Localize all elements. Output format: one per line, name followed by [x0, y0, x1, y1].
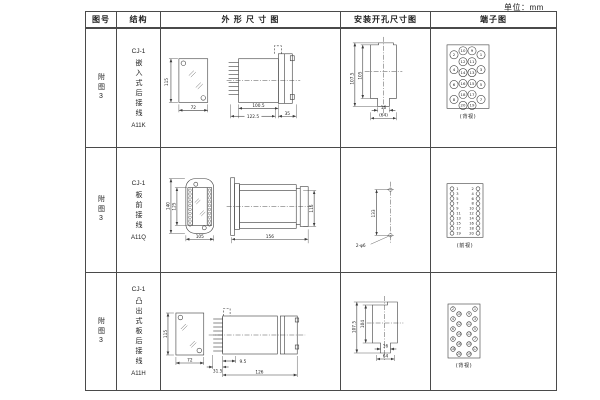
terminal-pin — [189, 204, 192, 207]
terminal-pin — [476, 187, 480, 191]
terminal-pin — [189, 224, 192, 227]
terminal-number: 18 — [461, 92, 466, 97]
terminal-pin — [208, 204, 211, 207]
terminal-number: 1 — [474, 307, 476, 311]
terminal-pin — [476, 197, 480, 201]
terminal-pin — [476, 202, 480, 206]
model-label: CJ-1 — [132, 180, 146, 187]
fig-no-label: 附图3 — [98, 195, 105, 225]
outline-drawing-a11q: 140 125 105 156 115 — [161, 148, 340, 272]
header-mounting: 安装开孔尺寸图 — [341, 12, 431, 29]
fig-no-label: 附图3 — [98, 317, 105, 347]
outline-cell-3: 115 72 31.5 9.5 126 — [161, 273, 341, 390]
terminal-pin — [450, 197, 454, 201]
fig-no-cell-2: 附图3 — [86, 148, 117, 273]
terminal-pin — [208, 197, 211, 200]
header-terminal: 端子图 — [431, 12, 556, 29]
terminal-view-label: (前视) — [457, 241, 473, 249]
terminal-number: 20 — [461, 103, 466, 108]
header-structure: 结构 — [117, 12, 161, 29]
terminal-number: 11 — [456, 212, 461, 216]
dim-64: (64) — [379, 113, 388, 119]
dim-9-5: 9.5 — [240, 359, 247, 365]
terminal-number: 18 — [451, 347, 455, 351]
terminal-pin — [189, 220, 192, 223]
terminal-number: 16 — [469, 222, 474, 226]
dim-107-5: 107.5 — [351, 321, 357, 334]
terminal-pin — [189, 212, 192, 215]
terminal-number: 15 — [467, 342, 471, 346]
fig-no-label: 附图3 — [98, 73, 105, 103]
terminal-number: 7 — [456, 202, 458, 206]
fig-no-cell-1: 附图3 — [86, 29, 117, 148]
terminal-number: 7 — [474, 337, 476, 341]
terminal-pin — [450, 207, 454, 211]
terminal-number: 2 — [472, 187, 474, 191]
terminal-number: 6 — [453, 82, 456, 87]
terminal-number: 12 — [457, 322, 461, 326]
terminal-pin — [476, 217, 480, 221]
hole-note-2-phi6: 2-φ6 — [356, 243, 366, 249]
header-outline: 外 形 尺 寸 图 — [161, 12, 341, 29]
terminal-number: 3 — [480, 67, 483, 72]
terminal-number: 14 — [469, 217, 474, 221]
terminal-pin — [450, 212, 454, 216]
dim-115: 115 — [309, 204, 315, 212]
dim-105: 105 — [357, 71, 363, 79]
terminal-pin — [476, 212, 480, 216]
terminal-pin — [208, 220, 211, 223]
terminal-number: 3 — [474, 317, 476, 321]
terminal-number: 17 — [456, 227, 461, 231]
terminal-pin — [450, 222, 454, 226]
terminal-diagram-a11q: 1357911131517192468101214161820 (前视) — [431, 148, 556, 272]
terminal-number: 9 — [471, 48, 474, 53]
terminal-pin — [189, 200, 192, 203]
terminal-pin — [476, 226, 480, 230]
terminal-number: 3 — [456, 192, 458, 196]
terminal-number: 2 — [452, 307, 454, 311]
terminal-number: 19 — [456, 232, 461, 236]
terminal-cell-1: 2468101214161820911131517191357 (背视) — [431, 29, 556, 148]
dim-31-5: 31.5 — [213, 368, 223, 374]
terminal-number: 6 — [472, 197, 475, 201]
terminal-number: 1 — [456, 187, 458, 191]
dim-72: 72 — [191, 105, 197, 111]
terminal-pin — [476, 207, 480, 211]
terminal-number: 5 — [474, 327, 476, 331]
terminal-pin — [476, 231, 480, 235]
terminal-number: 10 — [457, 312, 461, 316]
dim-115: 115 — [164, 78, 170, 86]
terminal-number: 8 — [453, 97, 456, 102]
dim-64: 64 — [383, 353, 389, 359]
terminal-number: 16 — [457, 342, 461, 346]
code-label: A11H — [131, 371, 146, 377]
terminal-number: 17 — [473, 347, 477, 351]
structure-cell-1: CJ-1 嵌入式后接线 A11K — [117, 29, 161, 148]
structure-label: 板前接线 — [135, 191, 142, 231]
dim-72: 72 — [187, 357, 193, 363]
terminal-number: 8 — [472, 202, 475, 206]
terminal-number: 12 — [461, 59, 466, 64]
terminal-number: 19 — [470, 103, 475, 108]
terminal-pin — [476, 222, 480, 226]
terminal-pin — [189, 193, 192, 196]
dim-126: 126 — [255, 369, 263, 375]
terminal-pin — [450, 231, 454, 235]
terminal-number: 17 — [470, 92, 475, 97]
structure-label: 凸出式板后接线 — [135, 297, 142, 367]
outline-cell-1: 115 72 100.5 122.5 35 — [161, 29, 341, 148]
terminal-cell-3: 2104126148161820193115137151719 (背视) — [431, 273, 556, 390]
outline-drawing-a11h: 115 72 31.5 9.5 126 — [161, 273, 340, 390]
model-label: CJ-1 — [132, 286, 146, 293]
terminal-number: 13 — [467, 332, 471, 336]
terminal-number: 9 — [456, 207, 459, 211]
terminal-diagram-a11k: 2468101214161820911131517191357 (背视) — [431, 29, 556, 147]
terminal-pin — [450, 187, 454, 191]
terminal-number: 15 — [470, 81, 475, 86]
outline-cell-2: 140 125 105 156 115 — [161, 148, 341, 273]
terminal-number: 5 — [480, 82, 483, 87]
terminal-pin — [208, 224, 211, 227]
fig-no-cell-3: 附图3 — [86, 273, 117, 390]
terminal-number: 13 — [456, 217, 461, 221]
terminal-view-label: (背视) — [460, 112, 476, 120]
terminal-pin — [450, 217, 454, 221]
terminal-number: 10 — [469, 207, 474, 211]
dim-122-5: 122.5 — [247, 114, 259, 120]
terminal-pin — [189, 208, 192, 211]
terminal-pin — [208, 193, 211, 196]
dim-125: 125 — [172, 202, 178, 210]
code-label: A11K — [131, 123, 145, 129]
pin-comb — [229, 63, 239, 95]
mounting-cell-2: 133 2-φ6 — [341, 148, 431, 273]
dim-16: 16 — [383, 343, 389, 349]
spec-table: 图号 结构 外 形 尺 寸 图 安装开孔尺寸图 端子图 附图3 CJ-1 嵌入式… — [85, 11, 557, 391]
structure-cell-3: CJ-1 凸出式板后接线 A11H — [117, 273, 161, 390]
terminal-number: 13 — [470, 70, 475, 75]
terminal-number: 18 — [469, 227, 474, 231]
terminal-pin — [208, 189, 211, 192]
terminal-number: 4 — [453, 67, 456, 72]
terminal-pin — [208, 212, 211, 215]
terminal-number: 7 — [480, 97, 483, 102]
terminal-number: 10 — [461, 48, 466, 53]
code-label: A11Q — [131, 235, 146, 241]
terminal-number: 14 — [457, 332, 461, 336]
terminal-number: 6 — [452, 327, 454, 331]
terminal-pin — [450, 226, 454, 230]
model-label: CJ-1 — [132, 48, 146, 55]
terminal-view-label: (背视) — [456, 361, 472, 369]
structure-label: 嵌入式后接线 — [135, 59, 142, 119]
dim-156: 156 — [266, 234, 274, 240]
terminal-diagram-a11h: 2104126148161820193115137151719 (背视) — [431, 273, 556, 390]
dim-35: 35 — [285, 111, 291, 117]
terminal-pin — [208, 216, 211, 219]
dim-100-5: 100.5 — [252, 103, 264, 109]
terminal-number: 2 — [453, 52, 456, 57]
mounting-drawing-a11q: 133 2-φ6 — [341, 148, 430, 272]
mounting-drawing-a11h: 107.5 104 16 64 — [341, 273, 430, 390]
dim-104: 104 — [360, 320, 366, 328]
terminal-pin — [450, 192, 454, 196]
dim-133: 133 — [371, 209, 377, 217]
terminal-number: 15 — [456, 222, 461, 226]
terminal-cell-2: 1357911131517192468101214161820 (前视) — [431, 148, 556, 273]
terminal-number: 16 — [461, 81, 466, 86]
terminal-number: 4 — [472, 192, 475, 196]
dim-16: 16 — [381, 105, 387, 111]
terminal-number: 8 — [452, 337, 454, 341]
terminal-number: 14 — [461, 70, 466, 75]
dim-105: 105 — [196, 234, 204, 240]
terminal-number: 1 — [480, 52, 483, 57]
terminal-pin — [189, 189, 192, 192]
terminal-number: 4 — [452, 317, 454, 321]
outline-drawing-a11k: 115 72 100.5 122.5 35 — [161, 29, 340, 147]
terminal-pin — [208, 200, 211, 203]
dim-115: 115 — [163, 330, 169, 338]
terminal-number: 19 — [467, 352, 471, 356]
dim-140: 140 — [165, 202, 171, 210]
terminal-number: 11 — [467, 322, 471, 326]
terminal-pin — [450, 202, 454, 206]
terminal-pin — [189, 216, 192, 219]
terminal-number: 11 — [470, 59, 475, 64]
mounting-cell-3: 107.5 104 16 64 — [341, 273, 431, 390]
terminal-pin — [476, 192, 480, 196]
structure-cell-2: CJ-1 板前接线 A11Q — [117, 148, 161, 273]
terminal-number: 20 — [469, 232, 474, 236]
terminal-number: 9 — [468, 312, 470, 316]
header-fig-no: 图号 — [86, 12, 117, 29]
terminal-pin — [208, 208, 211, 211]
mounting-drawing-a11k: 107.5 105 16 (64) — [341, 29, 430, 147]
mounting-cell-1: 107.5 105 16 (64) — [341, 29, 431, 148]
terminal-number: 5 — [456, 197, 458, 201]
terminal-pin — [189, 197, 192, 200]
terminal-number: 12 — [469, 212, 474, 216]
terminal-number: 20 — [457, 352, 461, 356]
dim-107-5: 107.5 — [349, 72, 355, 84]
